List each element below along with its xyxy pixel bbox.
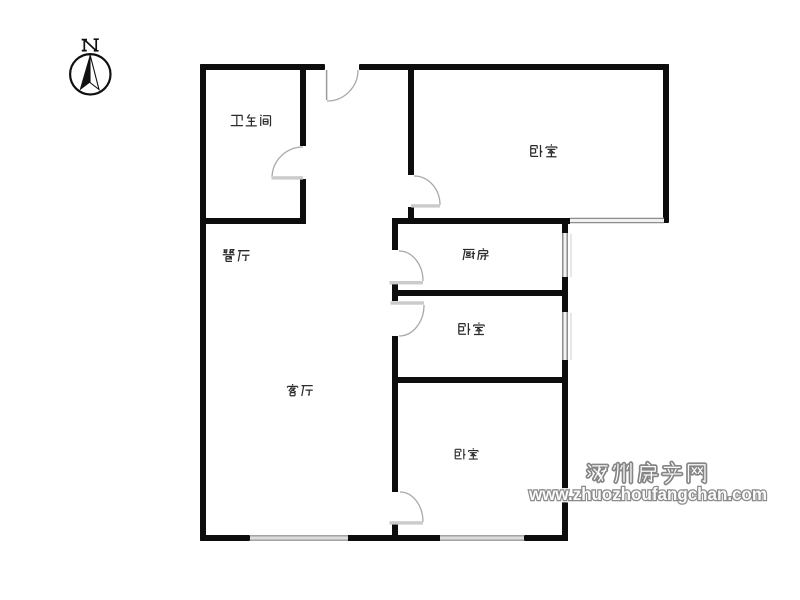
svg-text:www.zhuozhoufangchan.com: www.zhuozhoufangchan.com <box>528 484 767 504</box>
